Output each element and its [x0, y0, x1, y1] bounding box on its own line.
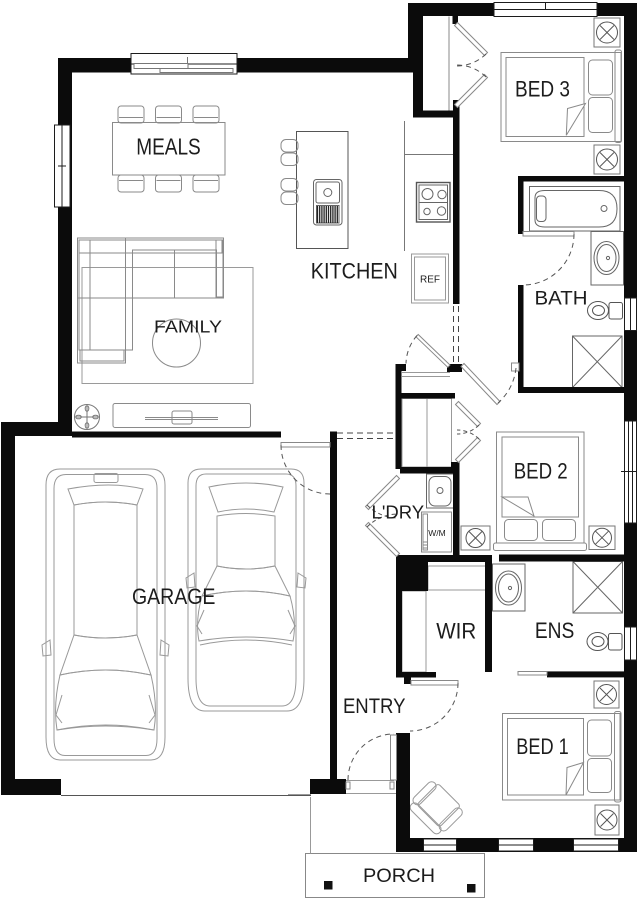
svg-text:L'DRY: L'DRY — [372, 501, 425, 522]
svg-text:ENTRY: ENTRY — [343, 694, 406, 718]
svg-text:BED 3: BED 3 — [515, 76, 570, 101]
svg-text:KITCHEN: KITCHEN — [311, 259, 398, 284]
svg-text:ENS: ENS — [535, 618, 575, 643]
svg-text:BED 2: BED 2 — [514, 458, 568, 483]
svg-text:WIR: WIR — [436, 618, 476, 643]
svg-text:GARAGE: GARAGE — [132, 584, 216, 609]
svg-text:MEALS: MEALS — [136, 134, 201, 160]
svg-text:BED 1: BED 1 — [516, 734, 569, 759]
svg-text:W/M: W/M — [428, 528, 445, 538]
svg-text:REF: REF — [420, 275, 440, 286]
svg-text:FAMILY: FAMILY — [154, 316, 222, 336]
svg-text:BATH: BATH — [535, 288, 588, 309]
svg-text:PORCH: PORCH — [363, 865, 435, 887]
